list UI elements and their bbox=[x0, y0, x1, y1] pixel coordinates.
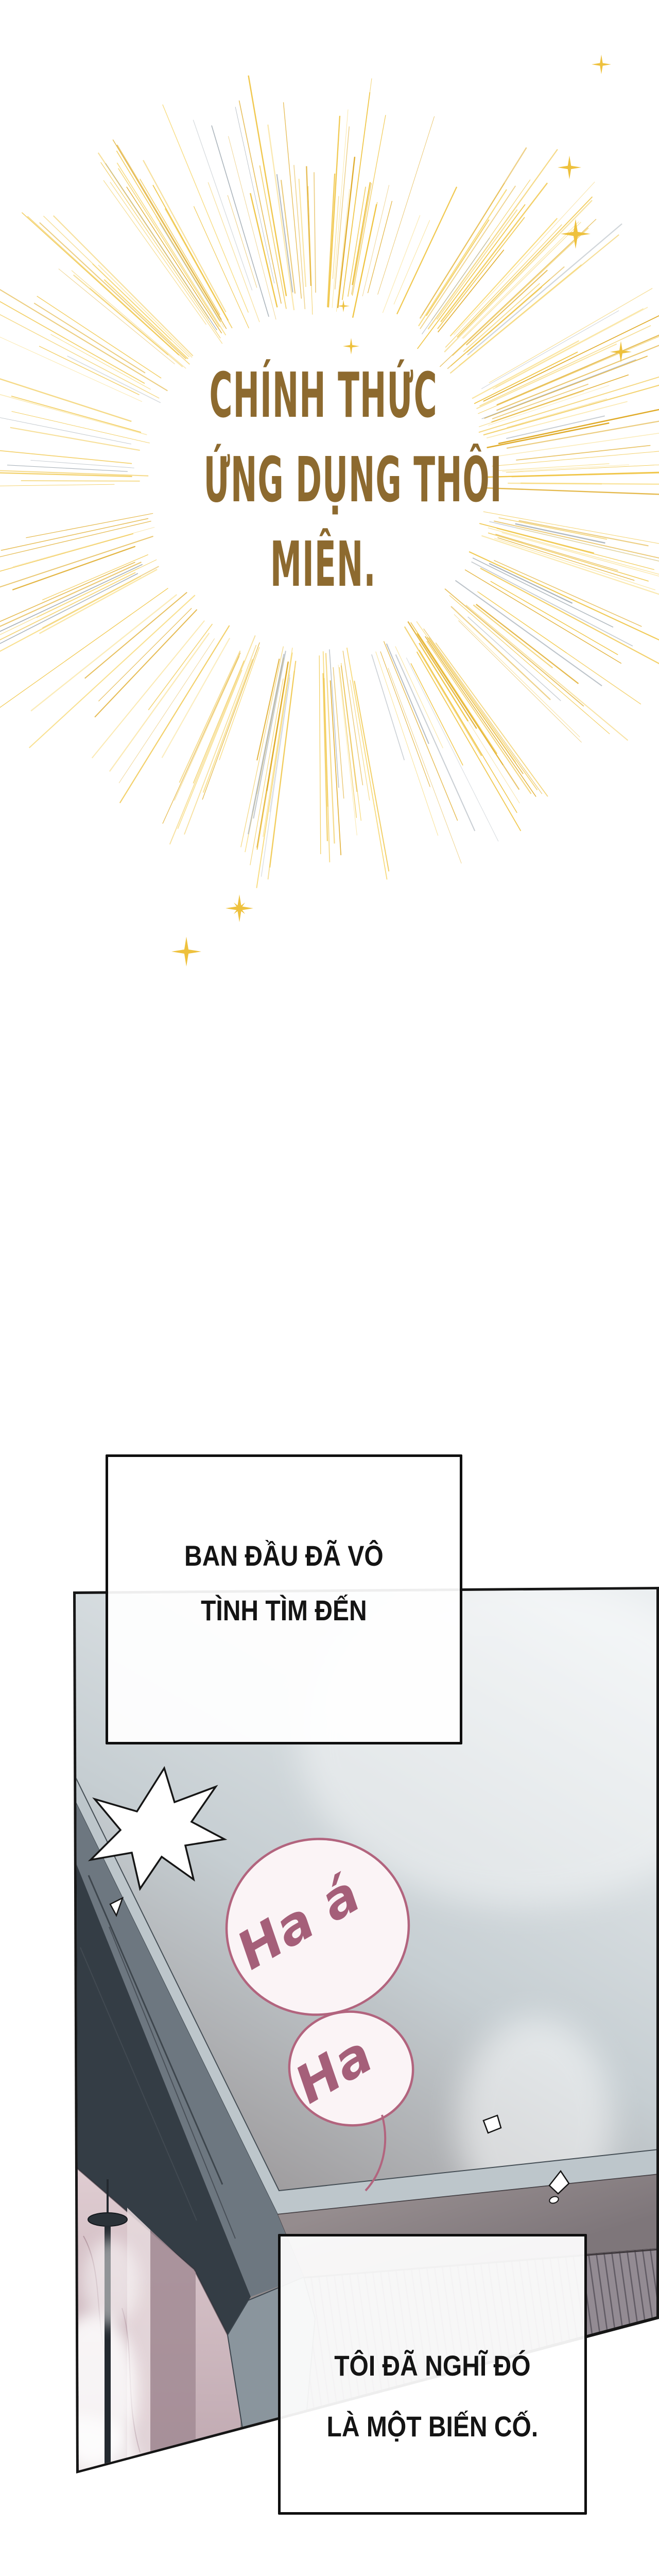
sun-ray bbox=[429, 638, 537, 790]
sun-ray bbox=[163, 653, 240, 824]
sun-ray bbox=[350, 680, 370, 801]
sun-ray bbox=[372, 654, 405, 760]
burst-caption: CHÍNH THỨC ỨNG DỤNG THÔI MIÊN. bbox=[66, 353, 581, 606]
sparkle-icon bbox=[337, 300, 350, 312]
sun-ray bbox=[22, 213, 179, 355]
narration-line: LÀ MỘT BIẾN CỐ. bbox=[327, 2392, 539, 2460]
burst-caption-line: CHÍNH THỨC bbox=[66, 353, 581, 437]
sun-ray bbox=[408, 621, 477, 728]
sun-ray bbox=[277, 174, 293, 292]
sun-ray bbox=[203, 659, 253, 792]
sun-ray bbox=[328, 116, 340, 308]
narration-line: TÔI ĐÃ NGHĨ ĐÓ bbox=[327, 2331, 539, 2399]
sun-ray bbox=[417, 652, 521, 831]
sparkle-shape bbox=[592, 55, 611, 74]
marble-dark-strip bbox=[150, 2230, 196, 2473]
sun-ray bbox=[387, 643, 429, 744]
sparkle-icon bbox=[171, 937, 201, 967]
marble-light-strip bbox=[127, 2208, 150, 2473]
sun-ray bbox=[319, 655, 321, 854]
sun-ray bbox=[116, 151, 220, 322]
narration-text-block: BAN ĐẦU ĐÃ VÔ TÌNH TÌM ĐẾN bbox=[180, 1529, 388, 1638]
sun-ray bbox=[104, 280, 188, 359]
sun-ray bbox=[420, 147, 527, 318]
sun-ray bbox=[420, 186, 515, 329]
sun-ray bbox=[98, 265, 192, 358]
sun-ray bbox=[467, 287, 542, 352]
sun-ray bbox=[119, 638, 215, 783]
burst-caption-text-3: MIÊN. bbox=[270, 521, 376, 607]
sun-ray bbox=[427, 641, 531, 794]
sun-ray bbox=[308, 186, 313, 314]
sun-ray bbox=[29, 595, 195, 748]
sun-ray bbox=[348, 187, 366, 297]
narration-box-1: BAN ĐẦU ĐÃ VÔ TÌNH TÌM ĐẾN bbox=[106, 1454, 462, 1744]
sun-ray bbox=[418, 634, 519, 790]
sun-ray bbox=[419, 650, 517, 813]
narration-line: TÌNH TÌM ĐẾN bbox=[184, 1580, 384, 1641]
sun-ray bbox=[394, 220, 430, 304]
sparkle-icon bbox=[343, 338, 359, 354]
sun-ray bbox=[148, 624, 212, 710]
narration-text-block: TÔI ĐÃ NGHĨ ĐÓ LÀ MỘT BIẾN CỐ. bbox=[322, 2335, 543, 2457]
sparkle-shape bbox=[337, 300, 350, 312]
sun-ray bbox=[425, 636, 536, 796]
sun-ray bbox=[343, 651, 362, 785]
sparkle-8point-icon bbox=[226, 894, 253, 922]
sun-ray bbox=[380, 652, 430, 787]
sun-ray bbox=[378, 116, 435, 295]
sun-ray bbox=[170, 635, 255, 844]
sun-ray bbox=[331, 681, 341, 855]
sun-ray bbox=[31, 595, 177, 711]
sun-ray bbox=[257, 659, 279, 760]
sun-ray bbox=[208, 182, 259, 322]
sparkle-icon bbox=[592, 55, 611, 74]
sun-ray bbox=[368, 201, 392, 293]
sun-ray bbox=[202, 642, 259, 800]
sparkle-shape bbox=[561, 219, 591, 249]
sparkle-shape bbox=[610, 341, 632, 363]
sun-ray bbox=[449, 596, 610, 734]
sun-ray bbox=[473, 605, 552, 668]
sun-ray bbox=[127, 187, 222, 333]
sun-ray bbox=[306, 166, 311, 286]
sun-ray bbox=[451, 606, 550, 700]
sun-ray bbox=[383, 215, 420, 313]
lamp-shade bbox=[88, 2213, 127, 2226]
sun-ray bbox=[40, 223, 186, 359]
sun-ray bbox=[388, 668, 461, 863]
sun-ray bbox=[422, 238, 490, 334]
sun-ray bbox=[467, 224, 622, 355]
sparkle-shape bbox=[558, 156, 581, 179]
sun-ray bbox=[466, 605, 628, 741]
webtoon-page: CHÍNH THỨC ỨNG DỤNG THÔI MIÊN. bbox=[0, 0, 659, 2576]
sun-ray bbox=[193, 120, 252, 291]
sun-ray bbox=[314, 172, 316, 293]
sun-ray bbox=[184, 645, 256, 835]
sun-ray bbox=[120, 625, 230, 803]
sun-ray bbox=[450, 218, 557, 336]
narration-box-2: TÔI ĐÃ NGHĨ ĐÓ LÀ MỘT BIẾN CỐ. bbox=[278, 2234, 587, 2515]
burst-caption-line: MIÊN. bbox=[66, 522, 581, 606]
sun-ray bbox=[418, 205, 525, 349]
burst-caption-text-2: ỨNG DỤNG THÔI bbox=[204, 436, 502, 522]
lamp-glow bbox=[82, 2239, 139, 2326]
sun-ray bbox=[101, 162, 221, 338]
sun-ray bbox=[219, 647, 259, 760]
sun-ray bbox=[140, 179, 220, 315]
sun-ray bbox=[352, 182, 370, 285]
sparkle-icon bbox=[561, 219, 591, 249]
sun-ray bbox=[347, 648, 387, 879]
sun-ray bbox=[212, 126, 269, 317]
sun-ray bbox=[193, 660, 244, 783]
sun-ray bbox=[95, 609, 197, 717]
sun-ray bbox=[250, 193, 277, 308]
sun-ray bbox=[92, 621, 205, 758]
sun-ray bbox=[417, 621, 516, 762]
sun-ray bbox=[354, 681, 389, 871]
sun-ray bbox=[426, 219, 489, 316]
sun-ray bbox=[228, 195, 257, 288]
burst-caption-line: ỨNG DỤNG THÔI bbox=[66, 437, 581, 522]
sparkle-shape bbox=[343, 338, 359, 354]
sun-ray bbox=[43, 216, 189, 357]
sparkle-icon bbox=[558, 156, 581, 179]
sparkle-shape bbox=[171, 937, 201, 967]
sparkle-icon bbox=[610, 341, 632, 363]
narration-line: BAN ĐẦU ĐÃ VÔ bbox=[184, 1525, 384, 1586]
burst-caption-text-1: CHÍNH THỨC bbox=[209, 352, 437, 438]
